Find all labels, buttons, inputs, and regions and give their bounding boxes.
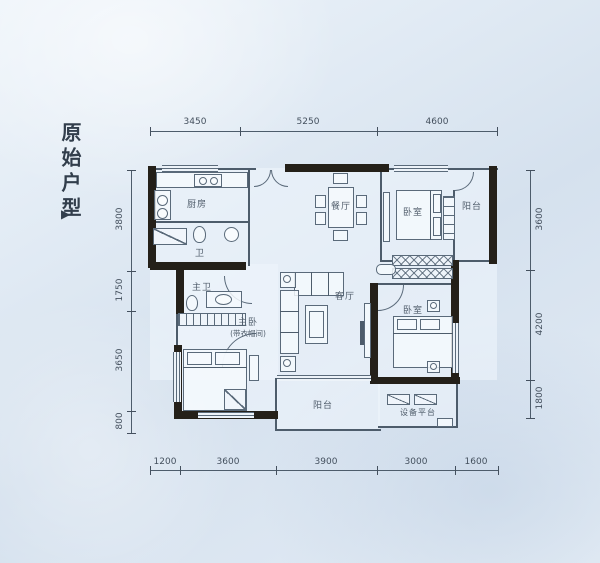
dim-tick	[150, 127, 151, 136]
window	[162, 165, 218, 172]
bed-line	[183, 367, 247, 368]
dim-right-1: 3600	[535, 199, 545, 239]
sliding-door	[277, 375, 371, 381]
chair	[315, 195, 326, 208]
dim-tick	[526, 270, 535, 271]
pillow	[215, 352, 240, 365]
dim-left-2: 1750	[115, 270, 125, 310]
dim-top-1: 3450	[170, 117, 220, 127]
basin-icon	[215, 294, 232, 305]
wall-equipment-right	[456, 383, 458, 428]
dim-tick	[455, 466, 456, 475]
dim-left-4: 800	[115, 401, 125, 441]
bed-line	[393, 333, 453, 334]
bearing-wall	[489, 166, 497, 264]
dim-bottom-5: 1600	[458, 457, 494, 467]
dim-right-3: 1800	[535, 378, 545, 418]
dim-tick	[127, 271, 136, 272]
dim-top-3: 4600	[412, 117, 462, 127]
room-label-bedroom-top: 卧室	[398, 208, 428, 218]
sofa-seam	[311, 272, 312, 296]
dim-tick	[526, 418, 535, 419]
dim-line-bottom	[150, 470, 498, 471]
title-arrow-icon: ▶	[61, 207, 70, 221]
dim-tick	[526, 380, 535, 381]
dim-line-left	[131, 170, 132, 433]
lamp-icon	[430, 302, 437, 309]
dim-tick	[127, 311, 136, 312]
wall-dining-bedroom	[380, 168, 382, 262]
chair	[315, 212, 326, 225]
bearing-wall	[150, 262, 246, 270]
dim-left-3: 3650	[115, 340, 125, 380]
room-label-kitchen: 厨房	[182, 200, 212, 210]
console-table	[376, 264, 396, 275]
room-label-master-bedroom: 主卧	[224, 318, 272, 328]
room-label-dining: 餐厅	[326, 202, 356, 212]
dim-tick	[127, 411, 136, 412]
chaise-sofa	[280, 290, 299, 354]
wash-basin	[224, 227, 239, 242]
equipment-unit	[387, 394, 410, 405]
pillow	[420, 319, 440, 330]
nightstand	[249, 355, 259, 381]
bearing-wall	[176, 262, 184, 314]
dim-bottom-2: 3600	[193, 457, 263, 467]
tv-cabinet	[364, 303, 371, 358]
dim-bottom-4: 3000	[381, 457, 451, 467]
burner-icon	[157, 208, 168, 219]
cabinet	[383, 192, 390, 242]
blanket-fold	[224, 389, 246, 410]
bearing-wall	[285, 164, 389, 172]
burner-icon	[157, 195, 168, 206]
dim-left-1: 3800	[115, 199, 125, 239]
room-label-balcony-top: 阳台	[458, 202, 486, 212]
dim-tick	[127, 170, 136, 171]
pillow	[433, 217, 441, 236]
toilet	[193, 226, 206, 243]
dim-tick	[526, 170, 535, 171]
sofa-seam	[280, 311, 299, 312]
floorplan-canvas: 原始户型 ▶ 3450 5250 4600 1200 3600 3900 300…	[0, 0, 600, 563]
room-label-master-note: (带衣帽间)	[220, 329, 276, 339]
dim-bottom-3: 3900	[291, 457, 361, 467]
dim-tick	[377, 466, 378, 475]
room-label-bath: 卫	[190, 249, 210, 259]
dim-tick	[377, 127, 378, 136]
room-label-bedroom-mid: 卧室	[398, 306, 428, 316]
pillow	[433, 194, 441, 213]
dim-tick	[180, 466, 181, 475]
closet-strip	[392, 268, 453, 279]
pillow	[397, 319, 417, 330]
closet-strip	[392, 255, 453, 266]
lamp-icon	[283, 359, 291, 367]
chair	[333, 230, 348, 241]
sink-basin-icon	[199, 177, 207, 185]
dim-bottom-1: 1200	[150, 457, 180, 467]
wall-balcony-left	[275, 378, 277, 431]
chair	[356, 195, 367, 208]
chair	[356, 212, 367, 225]
bed-line	[430, 190, 431, 240]
dim-tick	[276, 466, 277, 475]
window	[452, 323, 459, 373]
sink-basin-icon	[210, 177, 218, 185]
dim-tick	[240, 127, 241, 136]
window	[173, 352, 181, 402]
sofa-seam	[328, 272, 329, 296]
dim-tick	[127, 433, 136, 434]
wall-kitchen-bath	[150, 221, 250, 223]
dim-line-top	[150, 131, 498, 132]
drain-notch	[437, 418, 453, 427]
room-label-living: 客厅	[330, 292, 360, 302]
coffee-table-inner	[309, 311, 324, 338]
chair	[333, 173, 348, 184]
bearing-wall	[370, 283, 378, 383]
wall-kitchen-hall	[248, 168, 250, 266]
lamp-icon	[430, 363, 437, 370]
counter-hatch	[153, 228, 187, 245]
dim-right-2: 4200	[535, 304, 545, 344]
pillow	[187, 352, 212, 365]
equipment-unit	[414, 394, 437, 405]
bearing-wall	[370, 377, 460, 384]
wardrobe	[443, 196, 455, 240]
room-label-equipment: 设备平台	[392, 408, 444, 418]
dim-tick	[498, 466, 499, 475]
sofa-seam	[280, 332, 299, 333]
window	[198, 412, 254, 418]
dim-tick	[497, 127, 498, 136]
tv	[360, 321, 364, 345]
room-label-balcony-bottom: 阳台	[306, 401, 340, 411]
window	[394, 165, 448, 172]
toilet	[186, 295, 198, 311]
dim-tick	[150, 466, 151, 475]
dim-top-2: 5250	[283, 117, 333, 127]
lamp-icon	[283, 275, 291, 283]
wall-balcony-bottom	[275, 429, 381, 431]
